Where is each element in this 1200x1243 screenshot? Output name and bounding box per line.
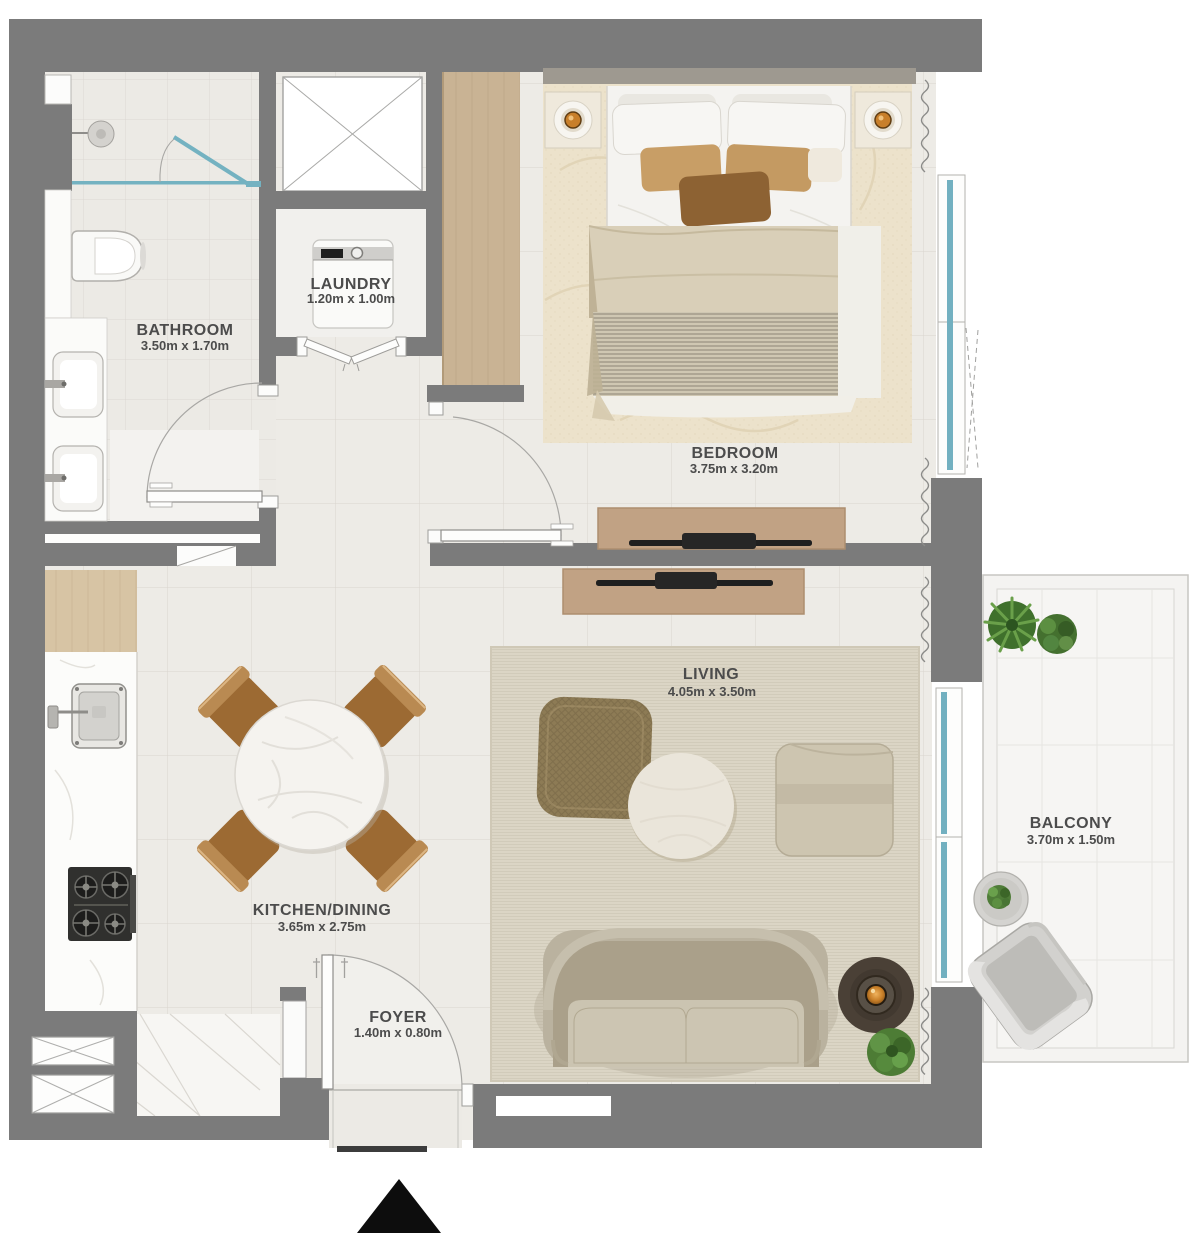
svg-text:KITCHEN/DINING: KITCHEN/DINING (253, 902, 392, 919)
svg-text:LIVING: LIVING (683, 666, 739, 683)
svg-text:BEDROOM: BEDROOM (691, 445, 778, 462)
svg-text:1.40m x 0.80m: 1.40m x 0.80m (354, 1025, 442, 1040)
svg-text:4.05m x 3.50m: 4.05m x 3.50m (668, 684, 756, 699)
svg-text:3.75m x 3.20m: 3.75m x 3.20m (690, 461, 778, 476)
svg-text:FOYER: FOYER (369, 1009, 427, 1026)
svg-text:BATHROOM: BATHROOM (136, 322, 233, 339)
svg-text:3.65m x 2.75m: 3.65m x 2.75m (278, 919, 366, 934)
svg-text:1.20m x 1.00m: 1.20m x 1.00m (307, 291, 395, 306)
svg-text:3.50m x 1.70m: 3.50m x 1.70m (141, 338, 229, 353)
svg-text:3.70m x 1.50m: 3.70m x 1.50m (1027, 832, 1115, 847)
svg-text:BALCONY: BALCONY (1030, 815, 1113, 832)
